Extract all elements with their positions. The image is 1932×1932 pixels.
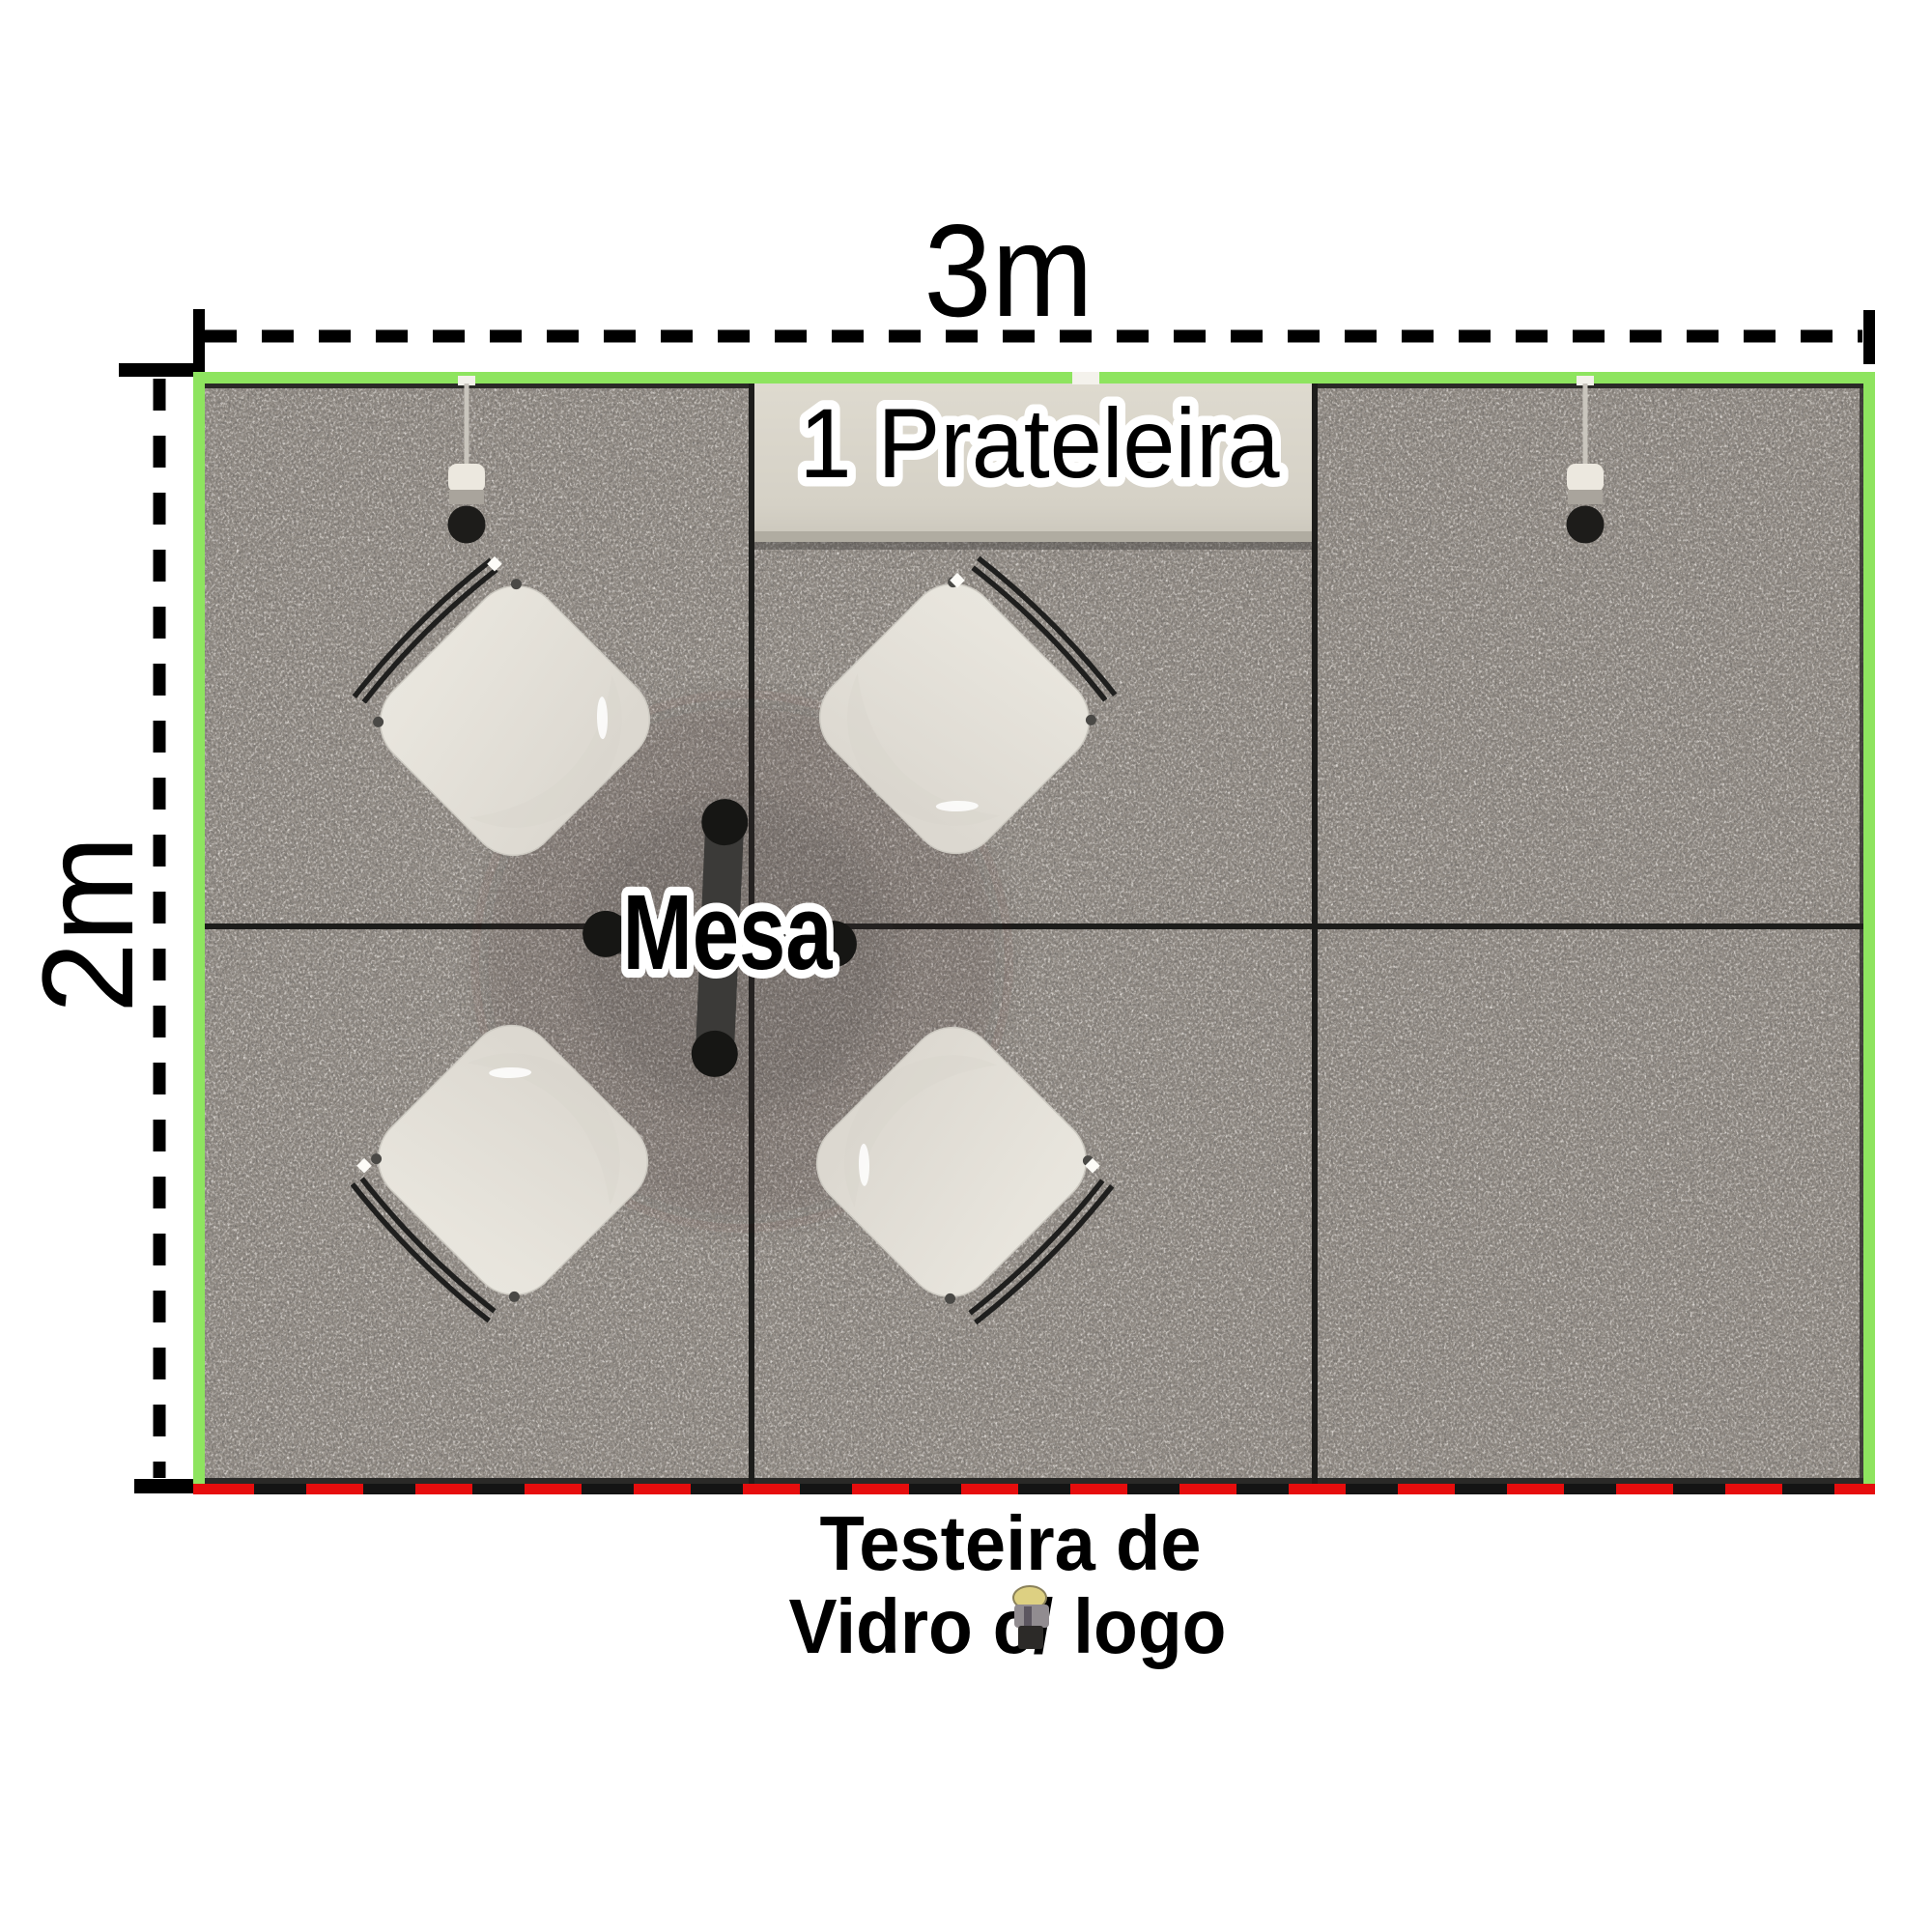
svg-text:Testeira de: Testeira de: [820, 1500, 1202, 1586]
svg-text:Mesa: Mesa: [623, 873, 834, 992]
svg-text:1 Prateleira: 1 Prateleira: [800, 388, 1280, 498]
svg-text:Vidro c/ logo: Vidro c/ logo: [789, 1583, 1227, 1669]
svg-text:3m: 3m: [924, 197, 1094, 344]
svg-text:2m: 2m: [16, 836, 160, 1013]
